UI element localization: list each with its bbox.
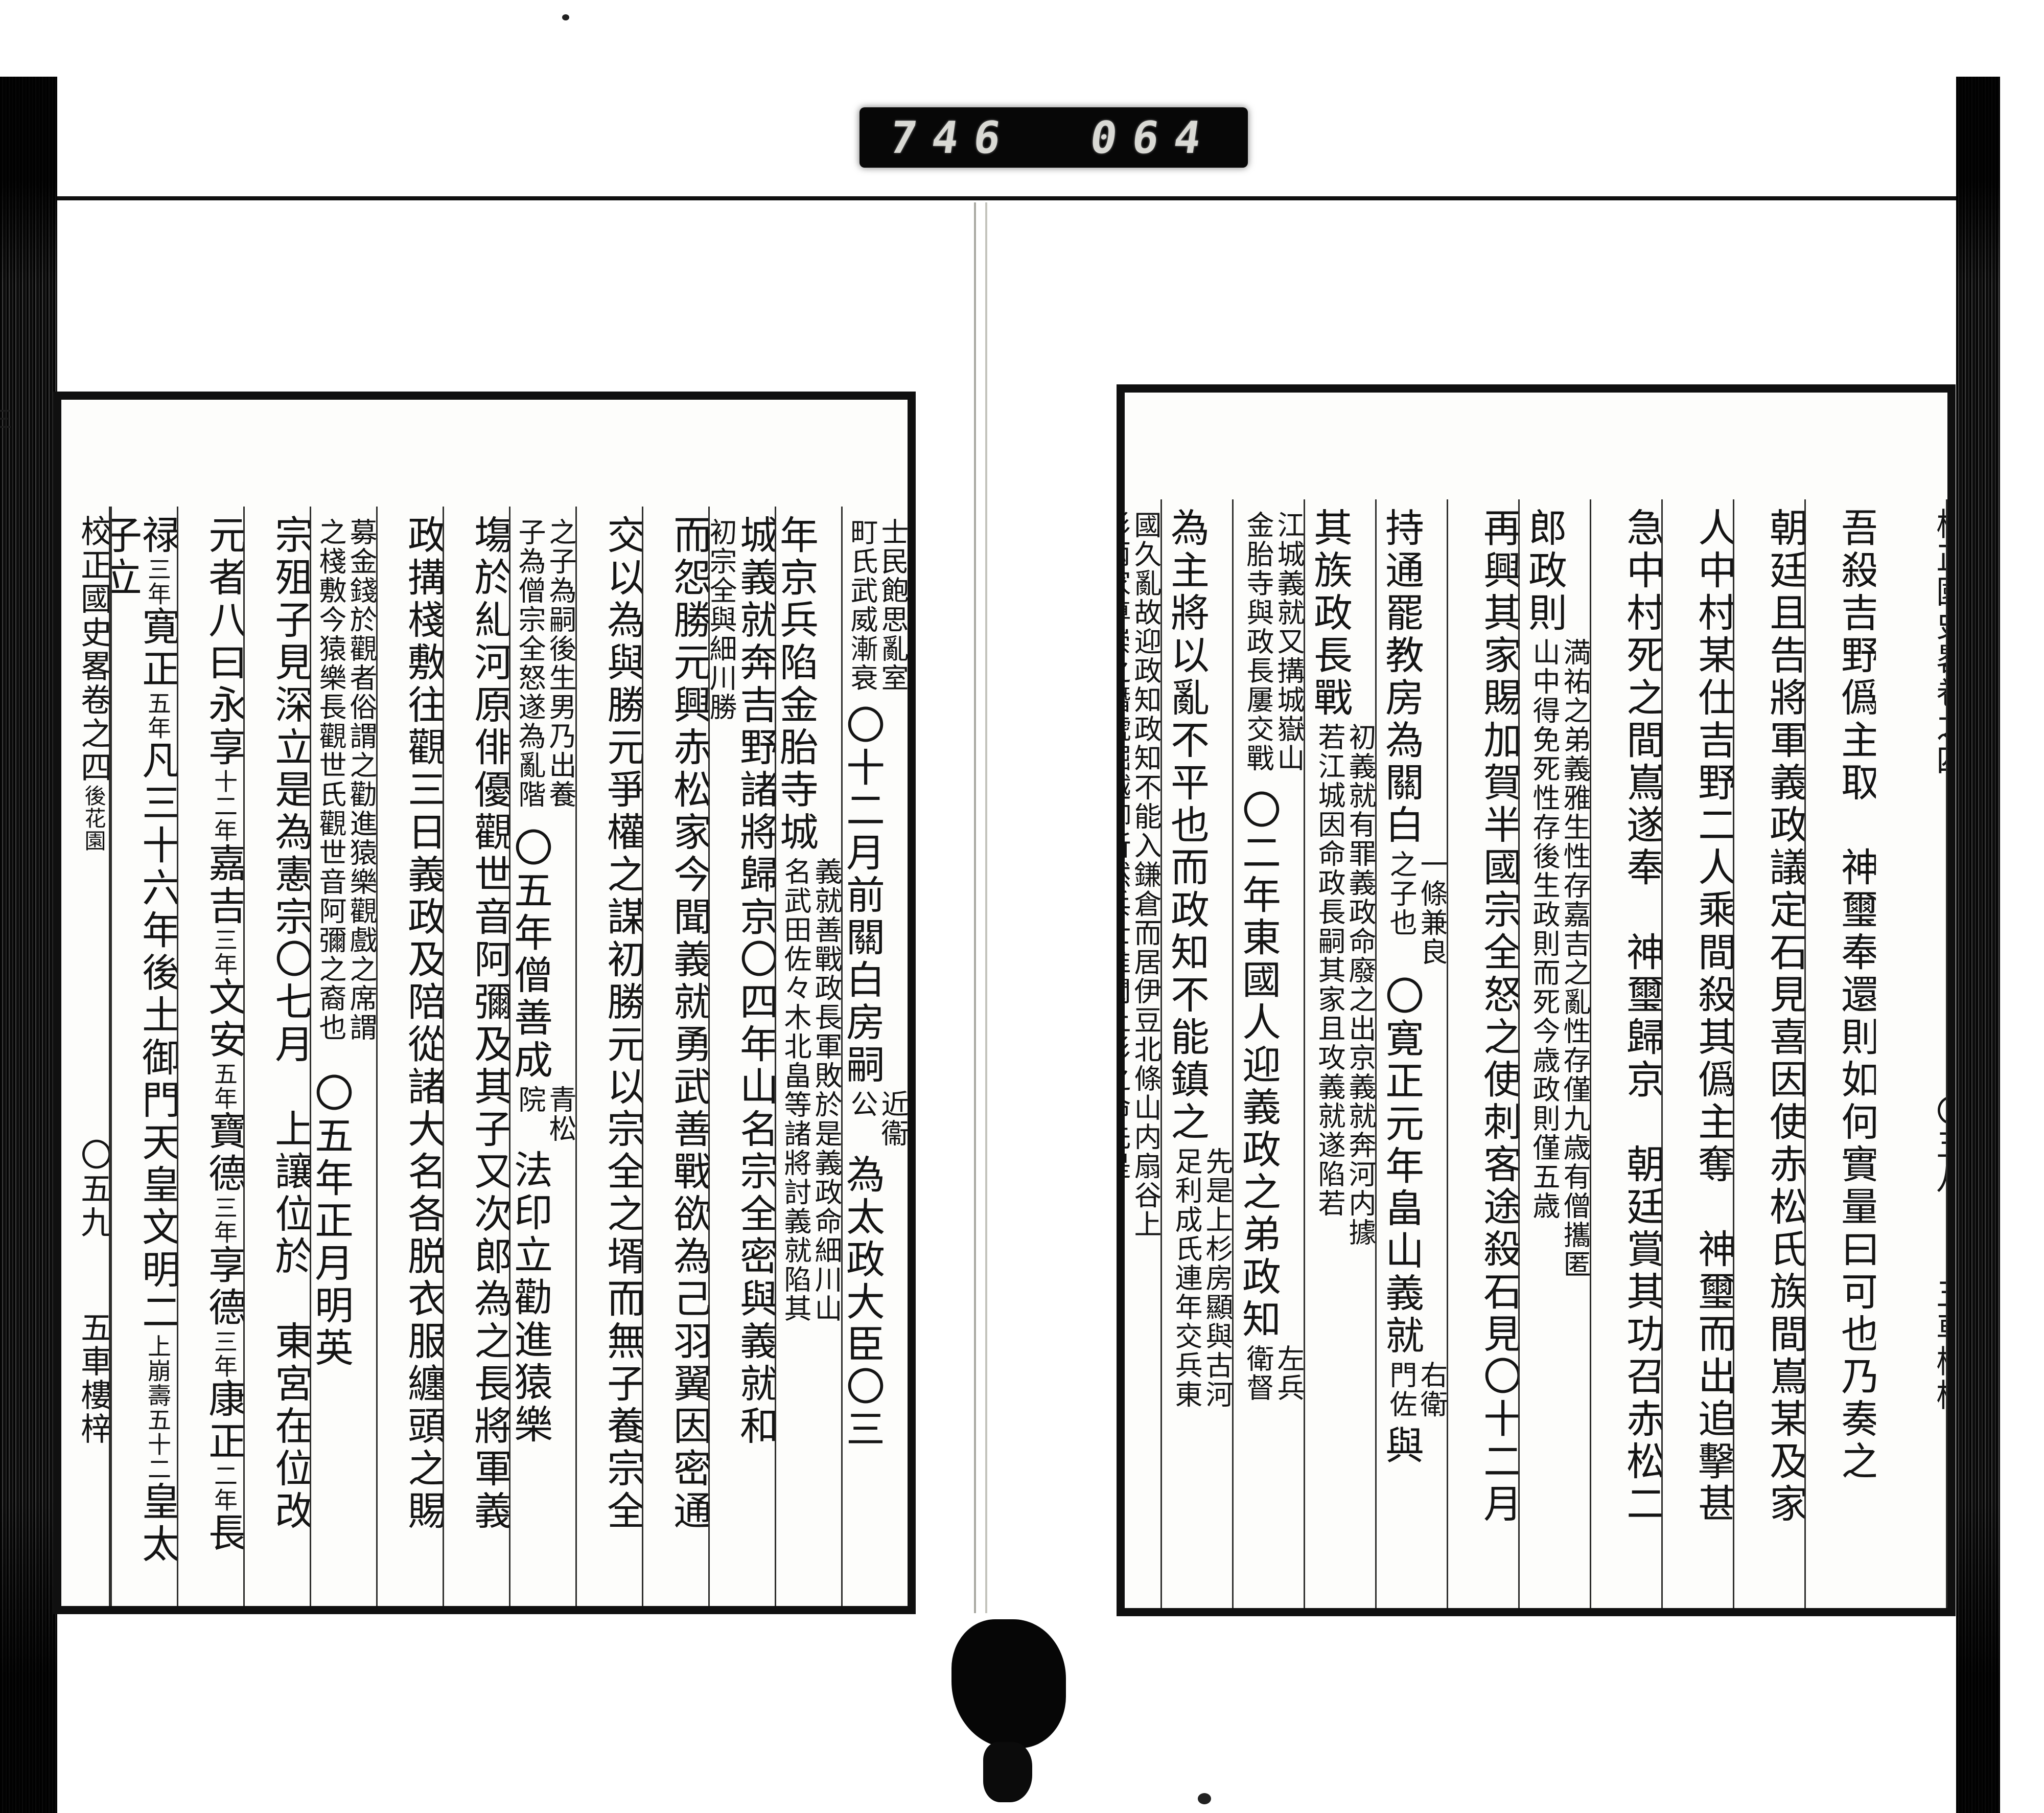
column-text: 政搆棧敷往觀三日義政及陪從諸大名各脱衣服纏頭之賜 (402, 515, 443, 1533)
center-fold-line-light (985, 202, 987, 1613)
interlinear-note: 近衞公 (846, 1090, 908, 1151)
text-column: 其族政長戰初義就有罪義政命廢之出京義就奔河内據若江城因命政長嗣其家且攻義就遂陷若 (1304, 499, 1375, 1608)
column-text: 而怨勝元興赤松家今聞義就勇武善戰欲為己羽翼因密通 (667, 515, 708, 1533)
text-column: 政搆棧敷往觀三日義政及陪從諸大名各脱衣服纏頭之賜 (376, 507, 443, 1606)
small-annotation: 三年 (211, 1196, 237, 1245)
interlinear-note: 士民飽思亂室町氏武威漸衰 (846, 518, 908, 702)
small-annotation: 三年 (211, 928, 237, 977)
text-column: 城義就奔吉野諸將歸京〇四年山名宗全密與義就和初宗全與細川勝元逐義就援政長 (708, 507, 775, 1606)
gutter-column: 校正國史畧卷之四後花園〇五九五車樓梓 (61, 507, 110, 1606)
book-top-edge-line (38, 196, 1972, 200)
text-column: 人中村某仕吉野二人乘間殺其僞主奪 神璽而出追擊甚 (1661, 499, 1733, 1608)
small-annotation: 後花園 (81, 785, 105, 852)
column-text: 急中村死之間嶌遂奉 神璽歸京 朝廷賞其功召赤松二 (1620, 508, 1661, 1526)
column-text: 校正國史畧卷之四 (1931, 508, 1947, 777)
column-text: 為太政大臣〇三 (841, 1154, 883, 1451)
interlinear-note: 義就善戰政長軍敗於是義政命細川山名武田佐々木北畠等諸將討義就陷其 (780, 857, 841, 1348)
text-column: 而怨勝元興赤松家今聞義就勇武善戰欲為己羽翼因密通 (642, 507, 708, 1606)
text-column: 士民飽思亂室町氏武威漸衰〇十二月前關白房嗣近衞公為太政大臣〇三 (841, 507, 908, 1606)
small-annotation: 十二年 (211, 769, 237, 843)
small-annotation: 三年 (211, 1329, 237, 1379)
binding-shadow-left (0, 77, 57, 1813)
column-text: 〇五九 (76, 1138, 110, 1240)
interlinear-note: 國久亂故迎政知政知不能入鎌倉而居伊豆北條山内扇谷上杉兩家尊崇之僭號堀越御所然兵士… (1125, 511, 1160, 1247)
column-text: 持通罷教房為關白 (1379, 508, 1422, 847)
text-column: 宗殂子見深立是為憲宗〇七月 上讓位於 東宮在位改 (243, 507, 310, 1606)
interlinear-note: 先是上杉房顯與古河足利成氏連年交兵東 (1171, 1147, 1232, 1423)
column-text: 校正國史畧卷之四 (76, 515, 110, 785)
column-text: 五車樓梓 (1931, 1277, 1947, 1412)
text-column: 再興其家賜加賀半國宗全怒之使刺客途殺石見〇十二月 (1447, 499, 1518, 1608)
text-column: 急中村死之間嶌遂奉 神璽歸京 朝廷賞其功召赤松二 (1590, 499, 1661, 1608)
column-text: 五車樓梓 (76, 1311, 110, 1446)
column-text: 為主將以亂不平也而政知不能鎮之 (1165, 508, 1207, 1144)
column-text: 塲於糺河原俳優觀世音阿彌及其子又次郎為之長將軍義 (468, 515, 509, 1533)
text-column: 國久亂故迎政知政知不能入鎌倉而居伊豆北條山内扇谷上杉兩家尊崇之僭號堀越御所然兵士… (1125, 499, 1160, 1608)
counter-digits-frame: 064 (1087, 112, 1219, 164)
text-column: 吾殺吉野僞主取 神璽奉還則如何實量曰可也乃奏之 (1804, 499, 1876, 1608)
column-text: 城義就奔吉野諸將歸京〇四年山名宗全密與義就和 (734, 515, 775, 1448)
column-text: 〇寛正元年畠山義就 (1379, 976, 1422, 1358)
column-text: 嘉吉 (202, 843, 243, 928)
column-text: 享德 (202, 1245, 243, 1329)
column-text: 交以為與勝元爭權之謀初勝元以宗全之壻而無子養宗全 (601, 515, 642, 1533)
small-annotation: 五年 (145, 691, 171, 740)
column-text: 康正 (202, 1379, 243, 1463)
column-text: 與 (1379, 1425, 1422, 1467)
interlinear-note: 初義就有罪義政命廢之出京義就奔河内據若江城因命政長嗣其家且攻義就遂陷若 (1314, 723, 1375, 1275)
column-text: 〇五八 (1931, 1094, 1947, 1196)
text-column: 禄三年寛正五年凡三十六年後土御門天皇文明二上崩壽五十二皇太子立 (110, 507, 177, 1606)
column-text: 〇十二月前關白房嗣 (841, 705, 883, 1087)
text-columns: 士民飽思亂室町氏武威漸衰〇十二月前關白房嗣近衞公為太政大臣〇三年京兵陷金胎寺城義… (61, 507, 908, 1606)
small-annotation: 五年 (211, 1062, 237, 1111)
column-text: 年京兵陷金胎寺城 (775, 515, 817, 854)
interlinear-note: 左兵衛督 (1242, 1344, 1304, 1406)
gutter-column: 校正國史畧卷之四〇五八五車樓梓 (1876, 499, 1947, 1608)
text-column: 之子為嗣後生男乃出養子為僧宗全怒遂為亂階〇五年僧善成青松院法印立勸進猿樂 (509, 507, 575, 1606)
text-column: 年京兵陷金胎寺城義就善戰政長軍敗於是義政命細川山名武田佐々木北畠等諸將討義就陷其 (775, 507, 841, 1606)
column-text: 其族政長戰 (1308, 508, 1351, 720)
column-text: 郎政則 (1522, 508, 1565, 635)
interlinear-note: 江城義就又搆城嶽山金胎寺與政長屢交戰 (1242, 511, 1304, 787)
column-text: 朝廷且告將軍義政議定石見喜因使赤松氏族間嶌某及家 (1763, 508, 1804, 1526)
ink-speck (562, 14, 569, 20)
text-column: 交以為與勝元爭權之謀初勝元以宗全之壻而無子養宗全 (575, 507, 642, 1606)
interlinear-note: 右衛門佐 (1385, 1361, 1447, 1422)
text-column: 郎政則満祐之弟義雅生性存嘉吉之亂性存僅九歳有僧攜匿山中得免死性存後生政則而死今歳… (1518, 499, 1590, 1608)
interlinear-note: 満祐之弟義雅生性存嘉吉之亂性存僅九歳有僧攜匿山中得免死性存後生政則而死今歳政則僅… (1528, 638, 1590, 1282)
center-fold-line (974, 202, 976, 1613)
page-right: 赤松氏家至是可興寛正元年二年 校正國史畧卷之四〇五八五車樓梓吾殺吉野僞主取 神璽… (1117, 384, 1956, 1616)
text-column: 江城義就又搆城嶽山金胎寺與政長屢交戰〇二年東國人迎義政之弟政知左兵衛督 (1232, 499, 1304, 1608)
interlinear-note: 之子為嗣後生男乃出養子為僧宗全怒遂為亂階 (514, 518, 575, 824)
column-text: 文安 (202, 977, 243, 1062)
small-annotation: 三年 (145, 557, 171, 606)
column-text: 〇五年正月明英 (310, 1073, 352, 1370)
column-text: 寶德 (202, 1111, 243, 1196)
text-column: 元者八曰永享十二年嘉吉三年文安五年寶德三年享德三年康正二年長 (177, 507, 243, 1606)
interlinear-note: 一條兼良之子也 (1385, 850, 1447, 973)
column-text: 〇二年東國人迎義政之弟政知 (1236, 790, 1279, 1341)
column-text: 寛正 (136, 606, 177, 691)
column-text: 長 (202, 1512, 243, 1555)
margin-year-label: 三年 (0, 407, 12, 431)
column-text: 人中村某仕吉野二人乘間殺其僞主奪 神璽而出追擊甚 (1692, 508, 1733, 1526)
column-text: 吾殺吉野僞主取 神璽奉還則如何實量曰可也乃奏之 (1835, 508, 1876, 1483)
interlinear-note: 青松院 (514, 1085, 575, 1146)
column-text: 〇五年僧善成 (509, 828, 551, 1082)
binding-shadow-right (1956, 77, 2000, 1813)
column-text: 凡三十六年後土御門天皇文明二 (136, 740, 177, 1334)
film-frame-counter: 746 064 (860, 107, 1248, 168)
interlinear-note: 初宗全與細川勝元逐義就援政長 (708, 518, 736, 732)
gutter-ink-blob (951, 1619, 1066, 1748)
page-left: 三年四年五年義政觀猿樂 士民飽思亂室町氏武威漸衰〇十二月前關白房嗣近衞公為太政大… (53, 392, 916, 1614)
ink-speck (1198, 1793, 1211, 1804)
scanned-book-spread: { "scanner_counter": { "left_digits": "7… (0, 0, 2044, 1813)
counter-digits-reel: 746 (887, 112, 1019, 164)
text-columns: 校正國史畧卷之四〇五八五車樓梓吾殺吉野僞主取 神璽奉還則如何實量曰可也乃奏之朝廷… (1125, 499, 1947, 1608)
text-column: 朝廷且告將軍義政議定石見喜因使赤松氏族間嶌某及家 (1733, 499, 1804, 1608)
text-column: 塲於糺河原俳優觀世音阿彌及其子又次郎為之長將軍義 (443, 507, 509, 1606)
text-column: 為主將以亂不平也而政知不能鎮之先是上杉房顯與古河足利成氏連年交兵東 (1160, 499, 1232, 1608)
column-text: 宗殂子見深立是為憲宗〇七月 上讓位於 東宮在位改 (269, 515, 310, 1533)
small-annotation: 上崩壽五十二 (145, 1334, 171, 1481)
small-annotation: 二年 (211, 1463, 237, 1512)
text-column: 募金錢於觀者俗謂之勸進猿樂觀戲之席謂之棧敷今猿樂長觀世氏觀世音阿彌之裔也〇五年正… (310, 507, 376, 1606)
text-column: 持通罷教房為關白一條兼良之子也〇寛正元年畠山義就右衛門佐與 (1375, 499, 1447, 1608)
gutter-ink-blob-small (983, 1742, 1032, 1802)
column-text: 禄 (136, 515, 177, 557)
column-text: 法印立勸進猿樂 (509, 1150, 551, 1447)
interlinear-note: 募金錢於觀者俗謂之勸進猿樂觀戲之席謂之棧敷今猿樂長觀世氏觀世音阿彌之裔也 (315, 518, 376, 1070)
column-text: 再興其家賜加賀半國宗全怒之使刺客途殺石見〇十二月 (1477, 508, 1518, 1526)
column-text: 元者八曰永享 (202, 515, 243, 769)
